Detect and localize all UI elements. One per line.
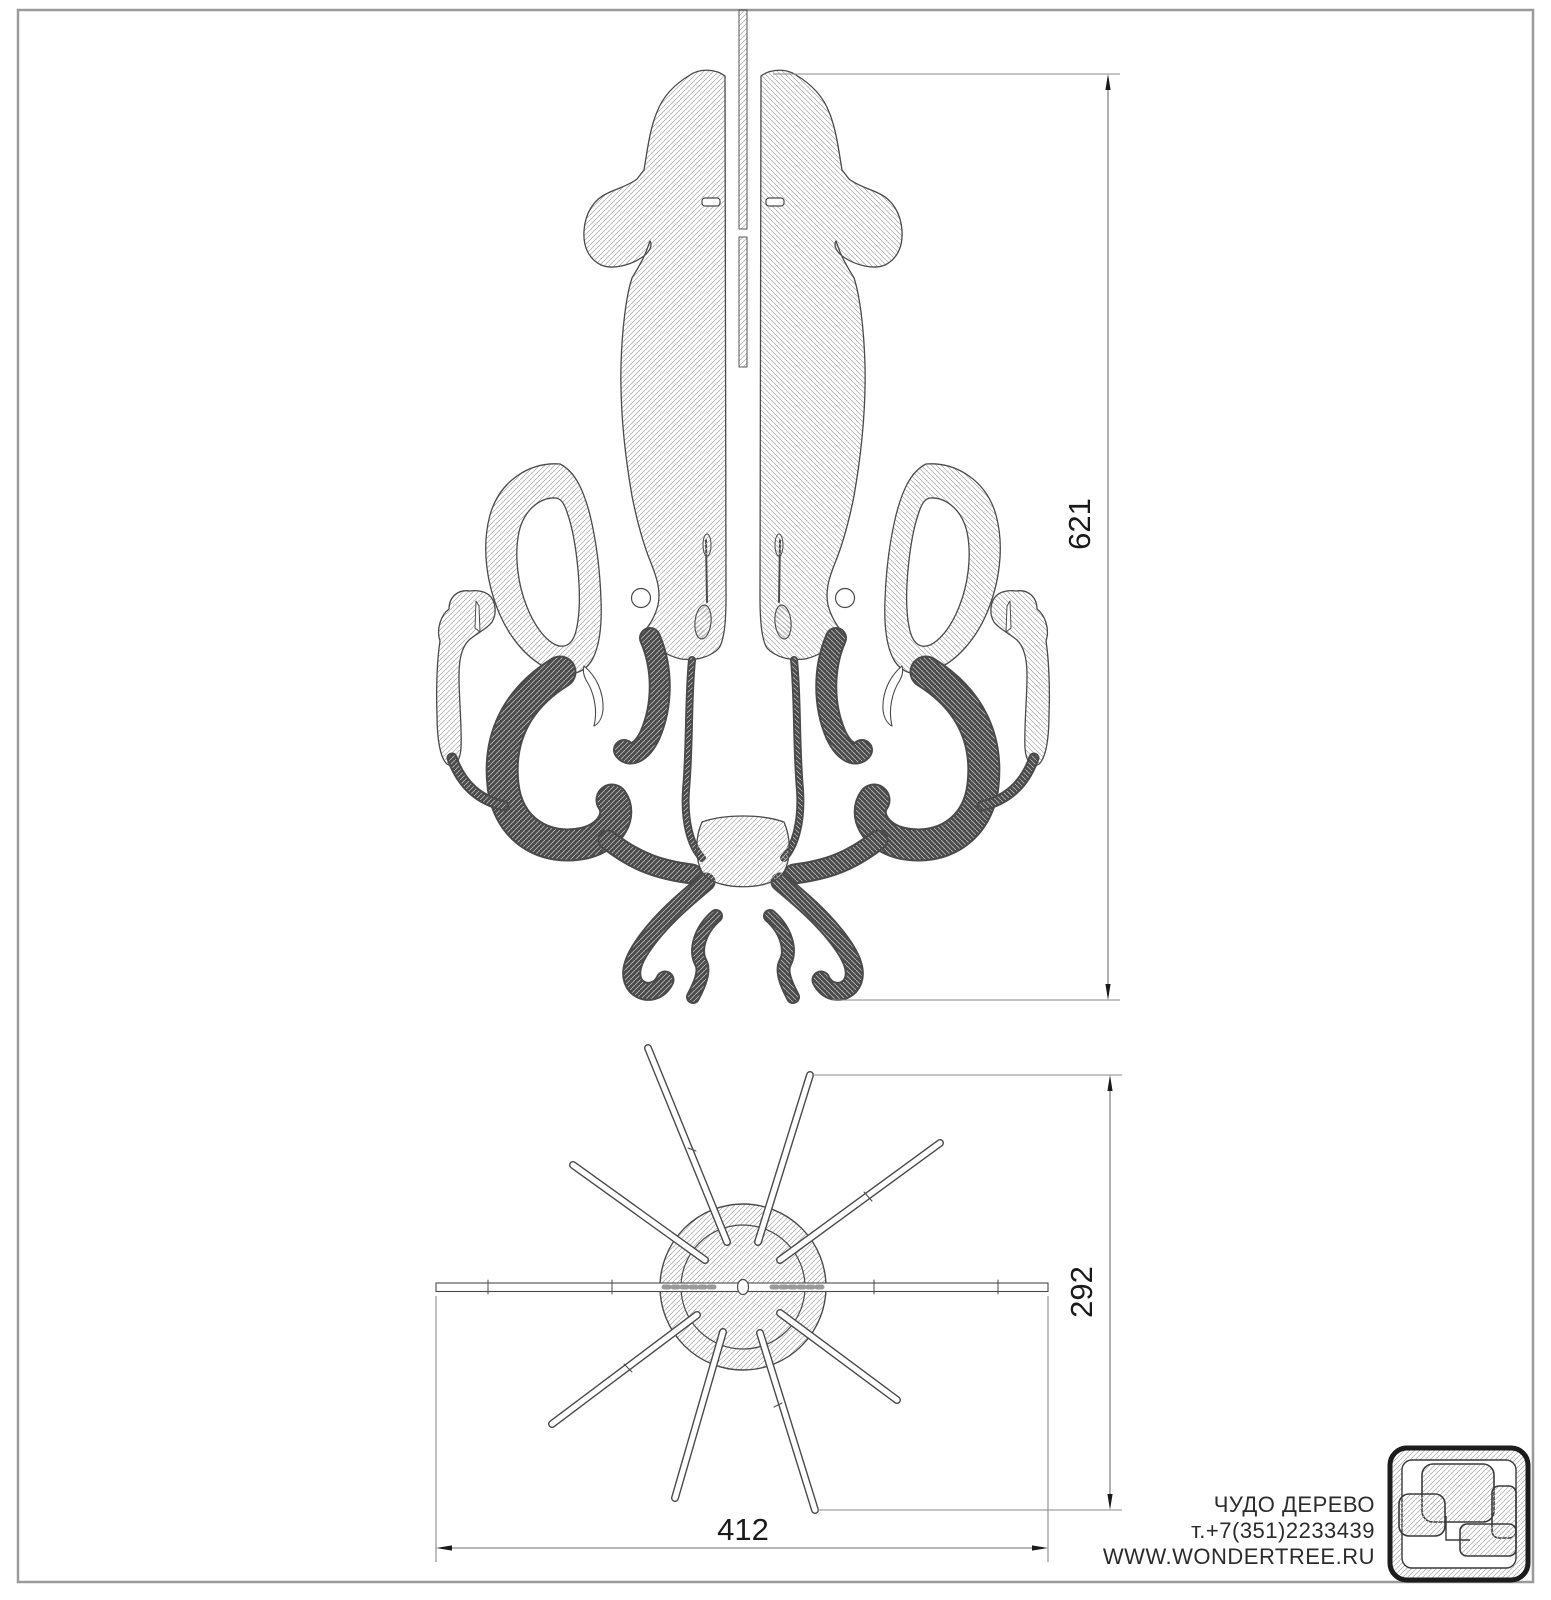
tentacle-tail-hatch <box>608 840 692 874</box>
arrowhead <box>1107 1075 1112 1091</box>
squid-body <box>584 70 726 659</box>
center-rod-upper <box>739 10 747 229</box>
arrowhead <box>1032 1545 1048 1550</box>
arrowhead <box>1105 74 1110 90</box>
right-half-mirror <box>760 70 1049 997</box>
dim-text-412: 412 <box>717 1512 769 1547</box>
center-rod-lower <box>739 237 747 367</box>
arrowhead <box>1105 984 1110 1000</box>
front-view <box>437 10 1050 997</box>
dim-text-621: 621 <box>1062 498 1097 550</box>
swan-beak-slit <box>475 601 480 632</box>
phone-number: т.+7(351)2233439 <box>1103 1518 1375 1544</box>
slot-mark <box>702 198 720 206</box>
swan-piece <box>437 591 496 766</box>
website-url: WWW.WONDERTREE.RU <box>1103 1544 1375 1570</box>
tentacle-loop <box>486 464 602 674</box>
hub-center-hole <box>738 1280 749 1295</box>
center-blob <box>697 816 789 887</box>
eye-hole <box>632 589 651 608</box>
arrowhead <box>436 1545 452 1550</box>
drawing-canvas: 621 292 412 <box>0 0 1551 1600</box>
drawing-sheet: 621 292 412 ЧУДО ДЕРЕВО т.+7(351)2233439… <box>0 0 1551 1600</box>
company-name: ЧУДО ДЕРЕВО <box>1103 1492 1375 1518</box>
footer-contact-block: ЧУДО ДЕРЕВО т.+7(351)2233439 WWW.WONDERT… <box>1103 1492 1375 1570</box>
tentacle-root-hatch <box>624 638 660 754</box>
logo-piece-left <box>1399 1494 1445 1536</box>
crescent-cutout <box>583 666 603 726</box>
dim-text-292: 292 <box>1064 1266 1099 1318</box>
wondertree-logo <box>1390 1448 1528 1580</box>
leaf-detail-small <box>703 534 711 556</box>
top-view <box>436 1048 1048 1510</box>
